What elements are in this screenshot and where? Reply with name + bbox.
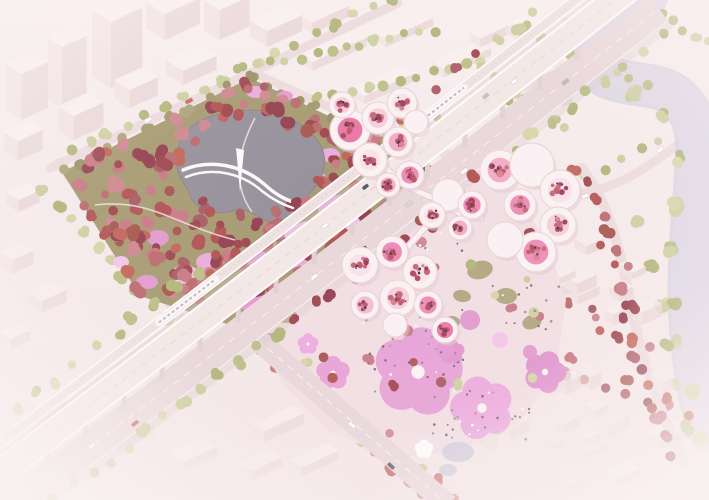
top-left-haze	[0, 0, 709, 500]
masterplan-aerial-render	[0, 0, 709, 500]
atmosphere-layer	[0, 0, 709, 500]
render-root	[0, 0, 709, 500]
